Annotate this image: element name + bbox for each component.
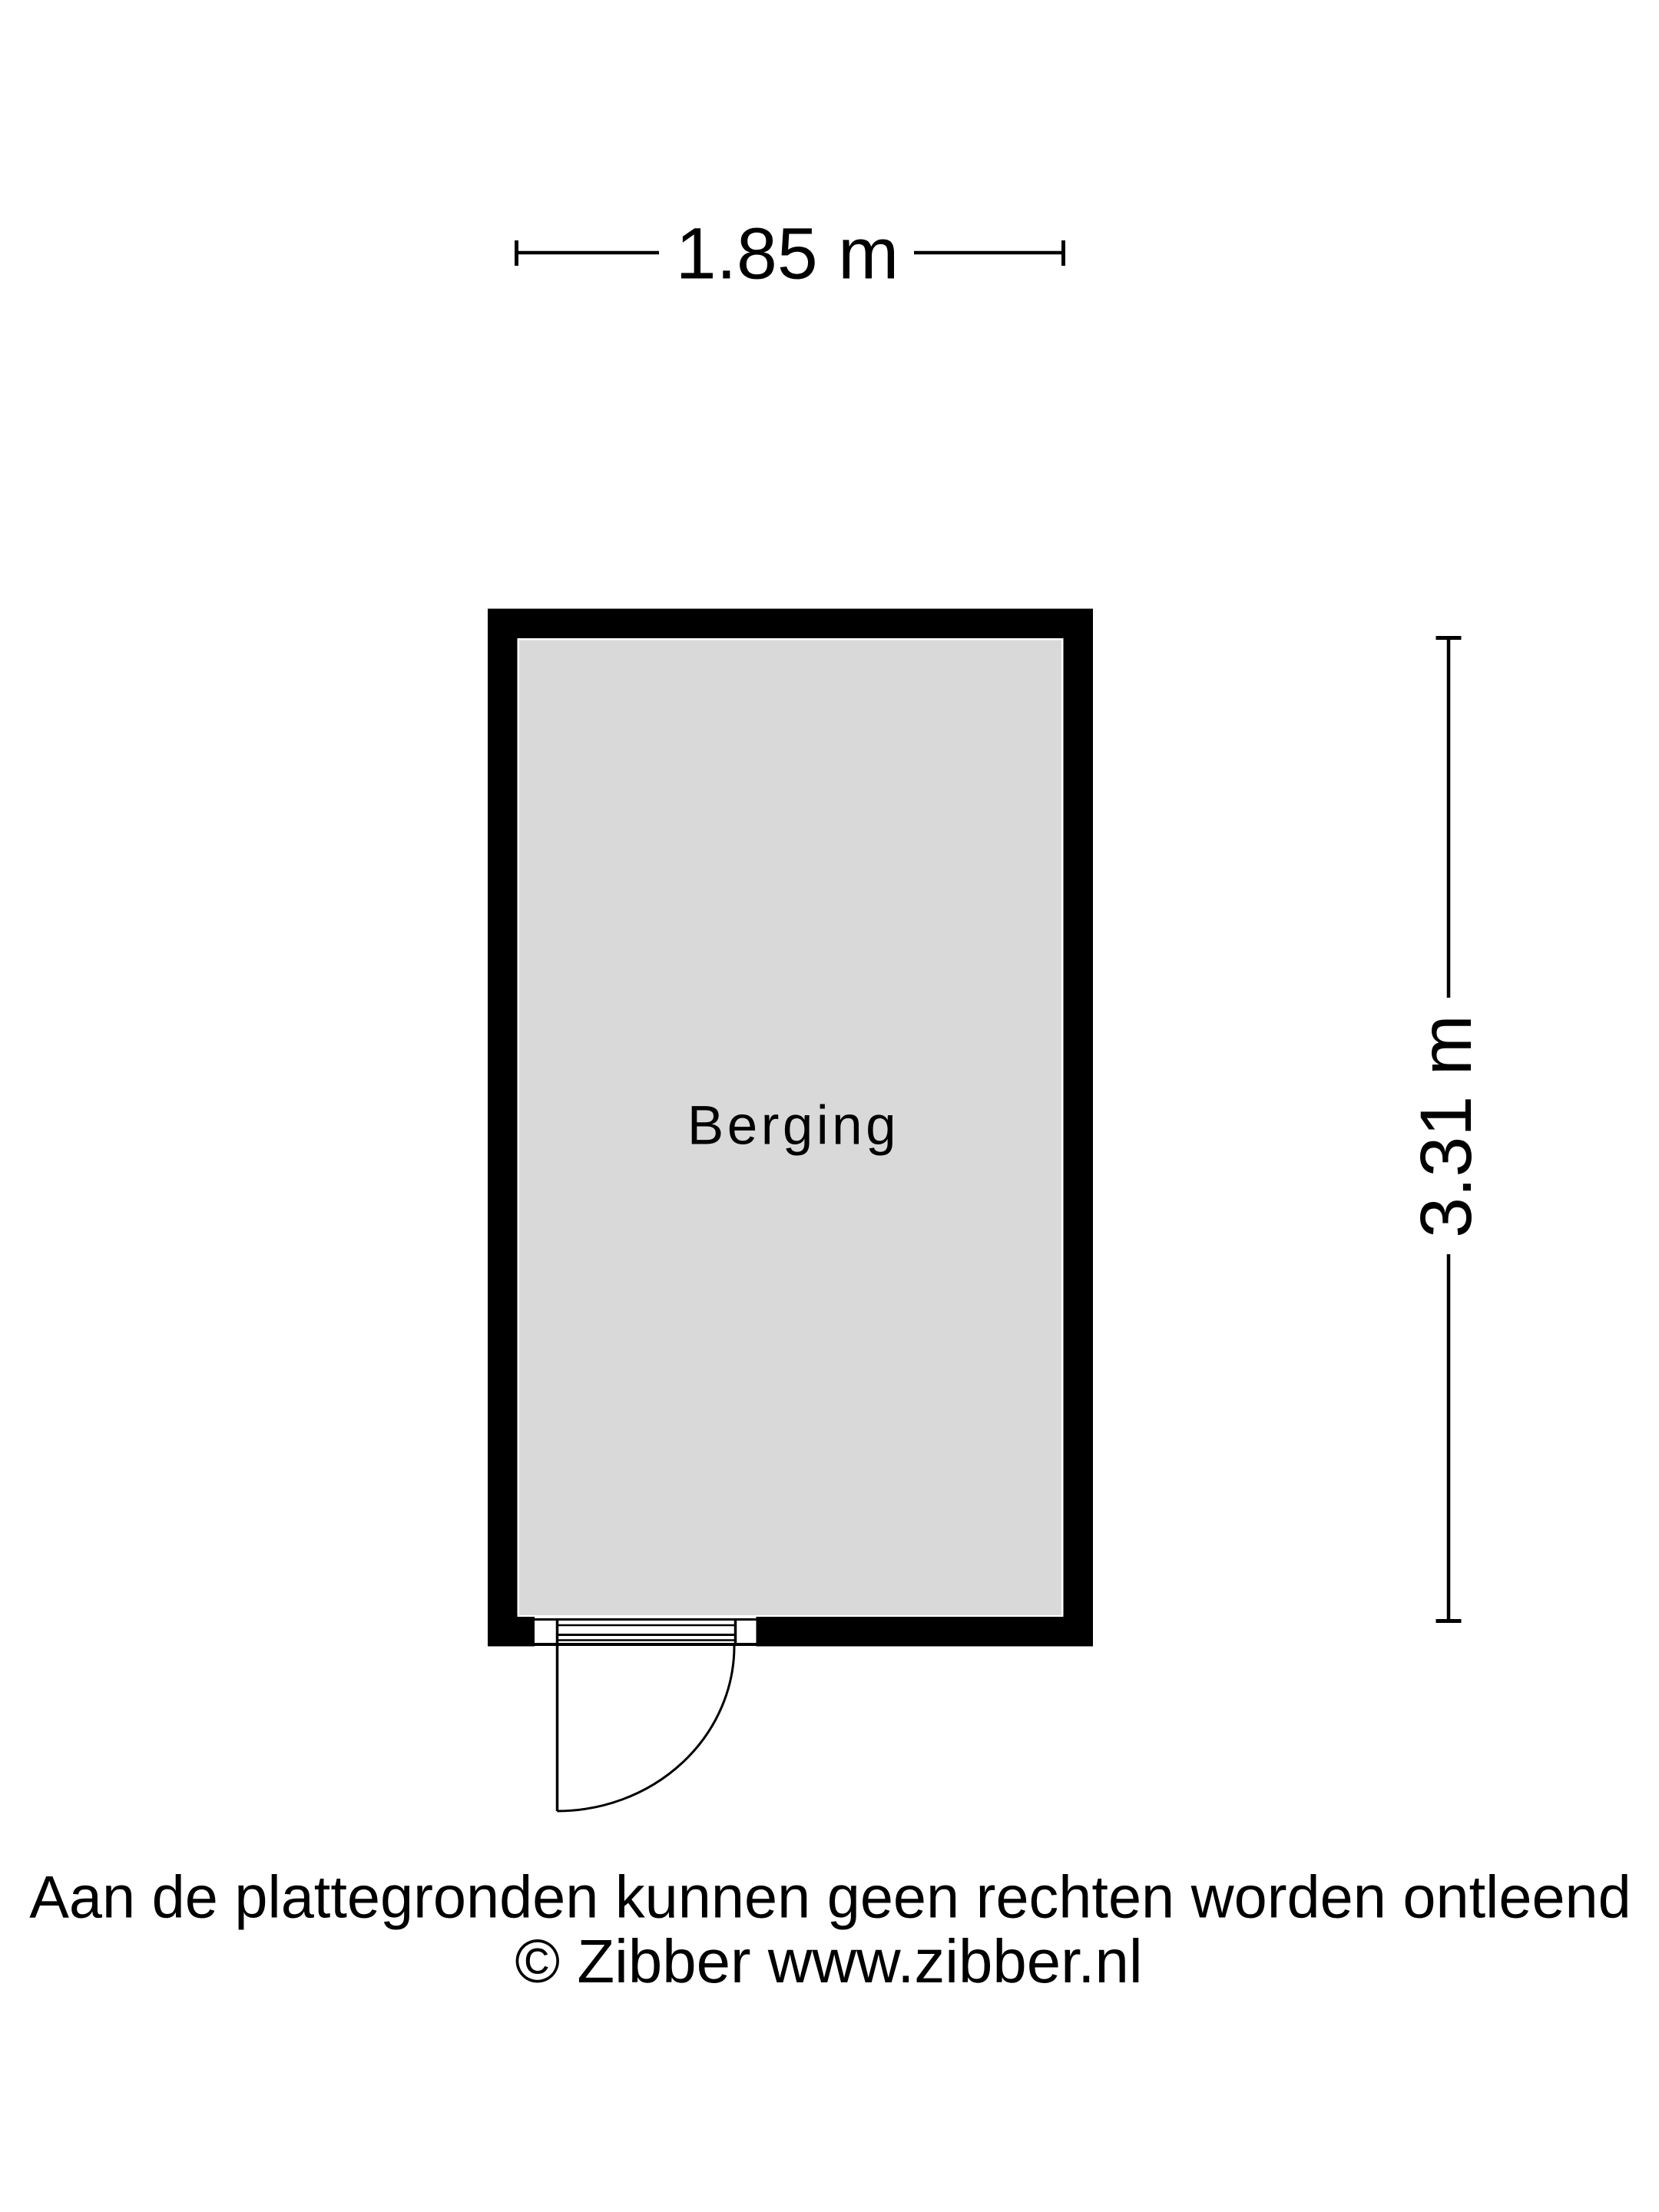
svg-text:3.31 m: 3.31 m [1406, 1015, 1487, 1237]
svg-text:1.85 m: 1.85 m [676, 213, 899, 294]
svg-text:Aan de plattegronden kunnen ge: Aan de plattegronden kunnen geen rechten… [29, 1865, 1631, 1931]
svg-text:Berging: Berging [687, 1096, 899, 1157]
svg-text:© Zibber www.zibber.nl: © Zibber www.zibber.nl [515, 1927, 1142, 1995]
